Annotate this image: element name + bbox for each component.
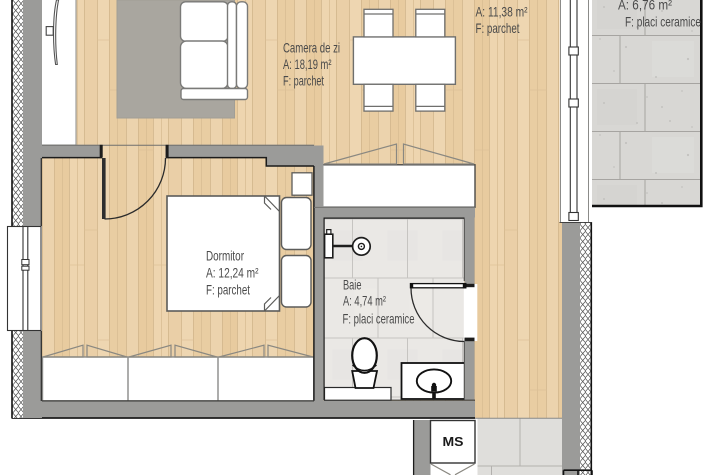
svg-text:A: 18,19 m²: A: 18,19 m² bbox=[283, 56, 332, 72]
svg-text:F: placi ceramice: F: placi ceramice bbox=[343, 311, 415, 327]
svg-text:Baie: Baie bbox=[343, 277, 362, 293]
svg-text:Dormitor: Dormitor bbox=[206, 248, 244, 264]
svg-text:A: 6,76 m²: A: 6,76 m² bbox=[618, 0, 672, 13]
svg-text:F: parchet: F: parchet bbox=[476, 20, 520, 36]
svg-text:A: 12,24 m²: A: 12,24 m² bbox=[206, 265, 259, 281]
svg-text:F: parchet: F: parchet bbox=[206, 282, 250, 298]
svg-text:MS: MS bbox=[443, 434, 464, 449]
svg-text:A: 11,38 m²: A: 11,38 m² bbox=[476, 3, 528, 19]
svg-text:F: parchet: F: parchet bbox=[283, 73, 324, 89]
svg-text:Camera de zi: Camera de zi bbox=[283, 40, 340, 56]
svg-text:A: 4,74 m²: A: 4,74 m² bbox=[343, 293, 386, 309]
svg-text:F: placi ceramice: F: placi ceramice bbox=[625, 14, 701, 30]
